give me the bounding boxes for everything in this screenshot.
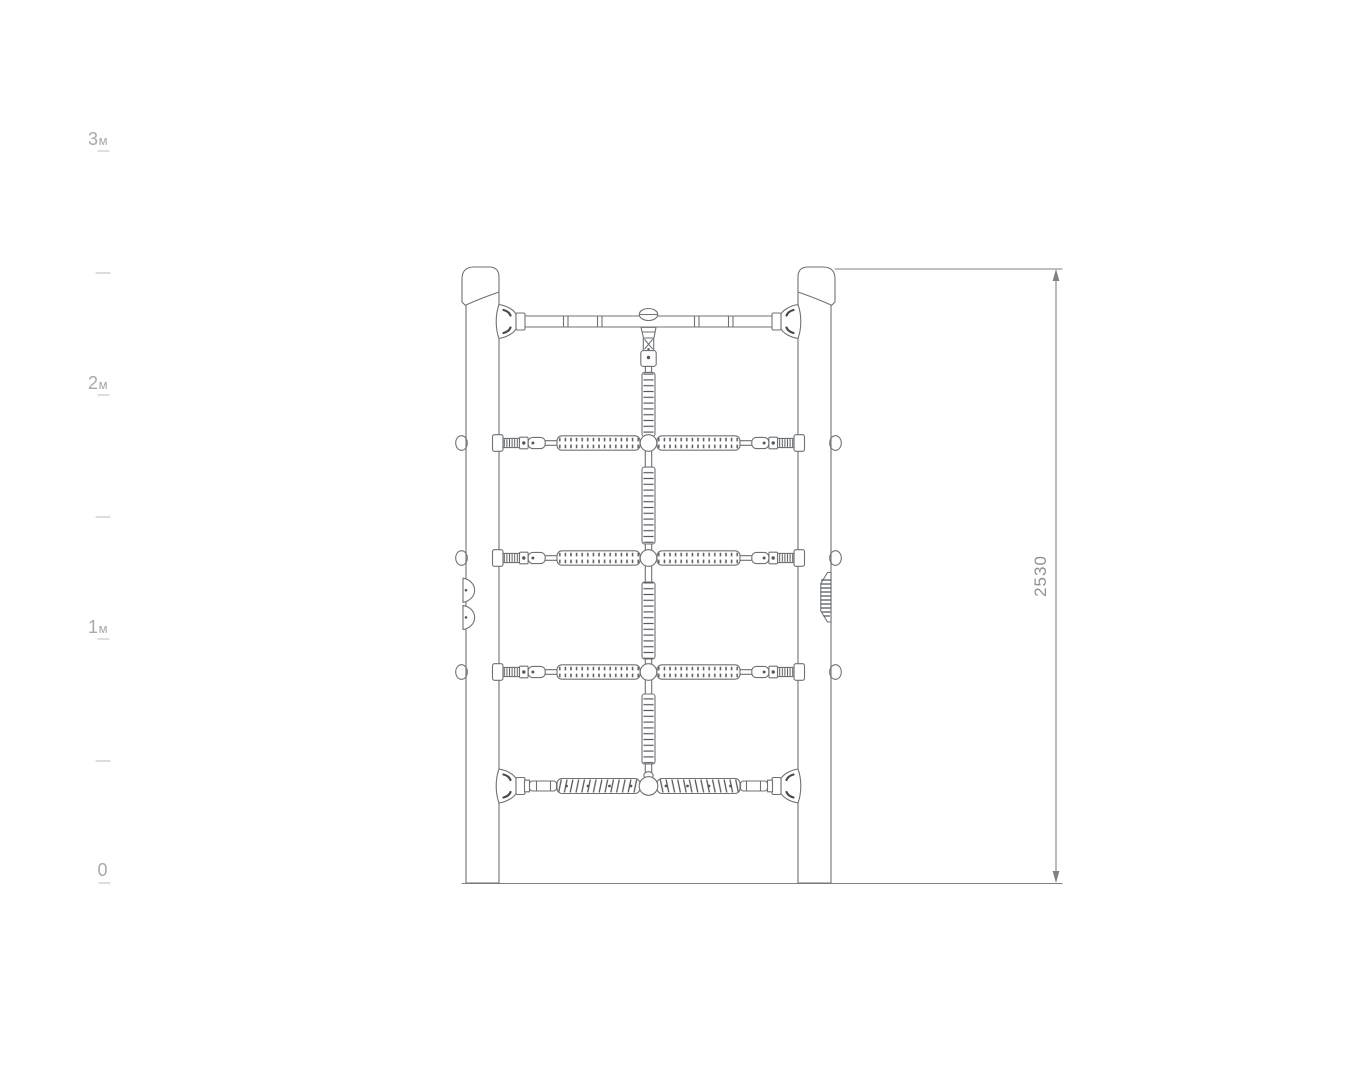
rope-junction-ball — [639, 777, 658, 796]
height-dimension — [1053, 269, 1060, 883]
dimension-label: 2530 — [1031, 555, 1051, 597]
rope-rung-2 — [456, 550, 842, 567]
vertical-center-rope — [642, 372, 655, 779]
rope-junction-ball — [640, 664, 657, 681]
scale-label-2m: 2м — [58, 372, 108, 396]
scale-label-unit: м — [99, 133, 108, 148]
scale-label-number: 3 — [88, 129, 99, 149]
height-scale-ticks — [96, 151, 110, 883]
dimension-arrow-top — [1053, 269, 1060, 281]
climbing-frame-elevation-drawing — [0, 0, 1354, 1080]
left-post — [462, 267, 499, 883]
cone-bracket — [496, 769, 525, 803]
dimension-arrow-bottom — [1053, 871, 1060, 883]
scale-label-number: 1 — [88, 617, 99, 637]
cone-bracket — [772, 305, 801, 339]
cone-bracket — [772, 769, 801, 803]
scale-label-3m: 3м — [58, 128, 108, 152]
scale-label-unit: м — [99, 621, 108, 636]
rope-junction-ball — [640, 550, 657, 567]
cone-bracket — [496, 305, 525, 339]
scale-label-1m: 1м — [58, 616, 108, 640]
rope-rung-1 — [456, 435, 842, 452]
scale-label-number: 2 — [88, 373, 99, 393]
rope-junction-ball — [640, 435, 657, 452]
rope-rung-3 — [456, 664, 842, 681]
drawing-canvas: 3м 2м 1м 0 2530 — [0, 0, 1354, 1080]
scale-label-0: 0 — [58, 859, 108, 883]
scale-label-number: 0 — [97, 860, 108, 880]
scale-label-unit: м — [99, 377, 108, 392]
top-center-clamp — [639, 309, 657, 373]
top-bar — [496, 305, 801, 373]
